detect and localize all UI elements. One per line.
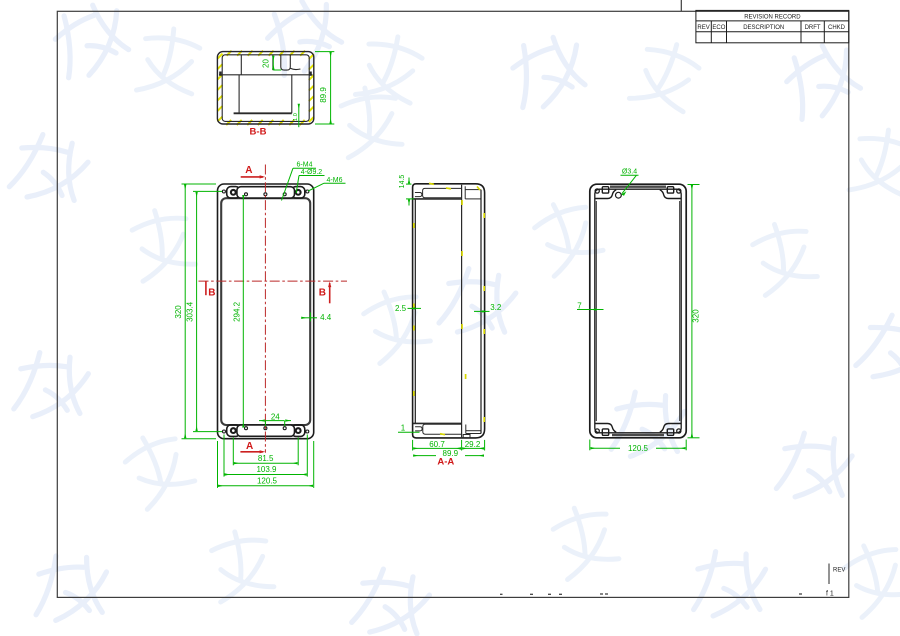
svg-text:ECO: ECO	[712, 25, 725, 31]
svg-text:REV: REV	[833, 568, 845, 574]
svg-text:B-B: B-B	[250, 126, 267, 137]
svg-text:DRFT: DRFT	[805, 25, 821, 31]
svg-text:B: B	[208, 287, 215, 298]
svg-text:4.4: 4.4	[320, 313, 332, 322]
svg-text:294.2: 294.2	[232, 301, 241, 322]
svg-text:A: A	[245, 165, 252, 176]
svg-text:120.5: 120.5	[628, 444, 649, 453]
svg-text:CHKD: CHKD	[828, 25, 846, 31]
svg-text:89.9: 89.9	[319, 87, 328, 103]
svg-text:REVISION RECORD: REVISION RECORD	[744, 14, 801, 20]
svg-text:3.2: 3.2	[490, 303, 502, 312]
svg-text:2.5: 2.5	[395, 304, 407, 313]
svg-text:320: 320	[691, 309, 700, 323]
svg-text:f 1: f 1	[826, 591, 834, 598]
svg-text:29.2: 29.2	[465, 440, 481, 449]
svg-text:24: 24	[271, 412, 280, 421]
svg-text:14.5: 14.5	[399, 175, 406, 189]
svg-text:120.5: 120.5	[257, 476, 278, 485]
svg-text:DESCRIPTION: DESCRIPTION	[743, 25, 784, 31]
svg-text:7: 7	[577, 301, 582, 310]
svg-text:Ø3.4: Ø3.4	[622, 169, 637, 176]
svg-text:81.5: 81.5	[258, 454, 274, 463]
svg-text:REV: REV	[697, 25, 709, 31]
svg-text:A: A	[246, 441, 253, 452]
svg-text:1.0: 1.0	[293, 113, 299, 121]
svg-text:20: 20	[262, 59, 271, 68]
svg-text:B: B	[319, 287, 326, 298]
svg-text:60.7: 60.7	[429, 440, 445, 449]
svg-text:103.9: 103.9	[256, 465, 277, 474]
svg-text:303.4: 303.4	[185, 301, 194, 322]
svg-text:6-M4: 6-M4	[297, 162, 313, 169]
svg-text:A-A: A-A	[437, 457, 454, 468]
svg-text:1: 1	[401, 424, 406, 433]
svg-text:320: 320	[174, 305, 183, 319]
